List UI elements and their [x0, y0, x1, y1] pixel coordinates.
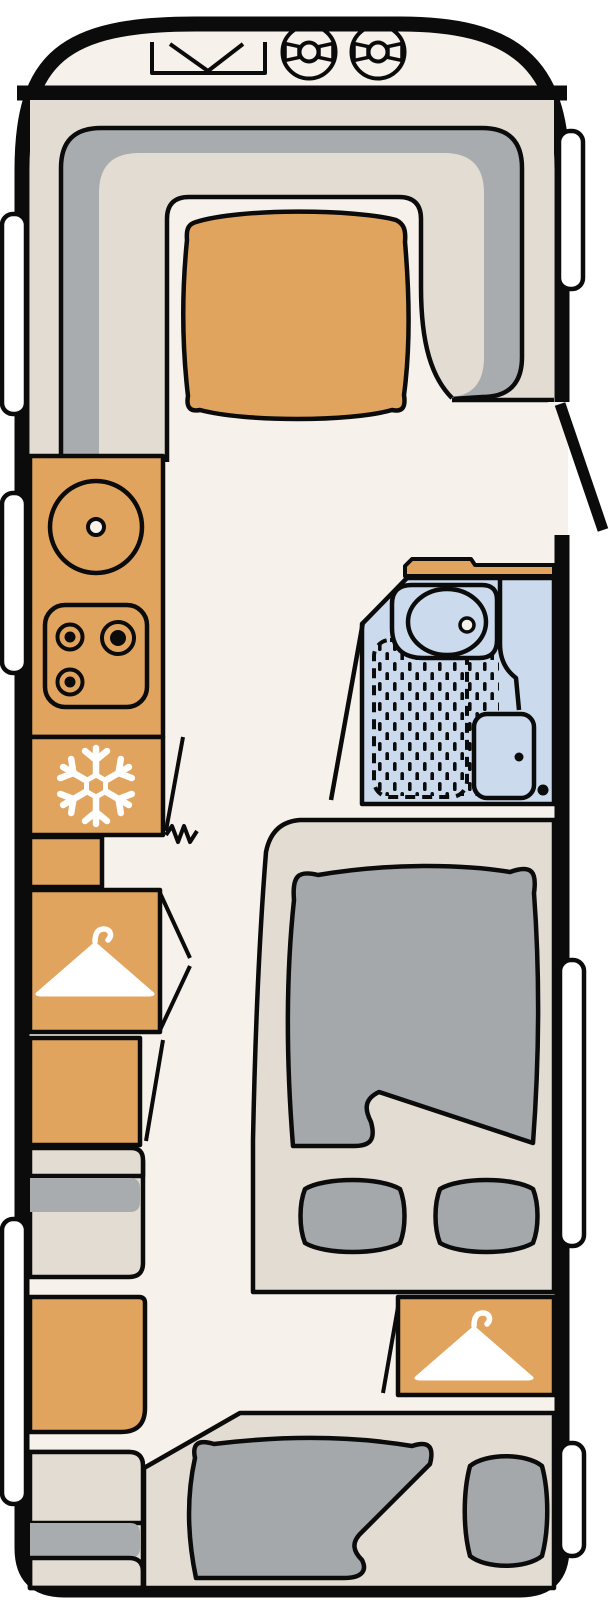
window-icon	[560, 960, 584, 1246]
side-seat-upper	[30, 1148, 143, 1277]
window-icon	[2, 493, 26, 673]
duvet-middle	[288, 866, 538, 1146]
window-icon	[2, 1219, 26, 1504]
caravan-floor-plan	[0, 0, 609, 1600]
entry-door	[548, 402, 603, 535]
rear-bedroom	[144, 1413, 554, 1588]
window-icon	[560, 1443, 584, 1556]
cabinet-left	[30, 1038, 140, 1145]
wardrobe-right	[383, 1297, 554, 1395]
sink-icon	[50, 481, 142, 573]
seat-gray-band	[30, 1178, 140, 1212]
side-seat-rear	[30, 1452, 143, 1588]
window-icon	[2, 214, 26, 414]
hob-icon	[45, 605, 147, 707]
seat-gray-band	[30, 1523, 140, 1558]
pillow	[465, 1456, 548, 1566]
pillow	[301, 1180, 405, 1252]
cabinet-bottom-left	[30, 1297, 145, 1432]
fridge	[30, 737, 163, 835]
dinette-table	[183, 212, 408, 419]
pillow	[436, 1180, 538, 1252]
floor-plan-svg	[0, 0, 609, 1600]
window-icon	[559, 131, 583, 289]
side-counter	[30, 837, 102, 887]
